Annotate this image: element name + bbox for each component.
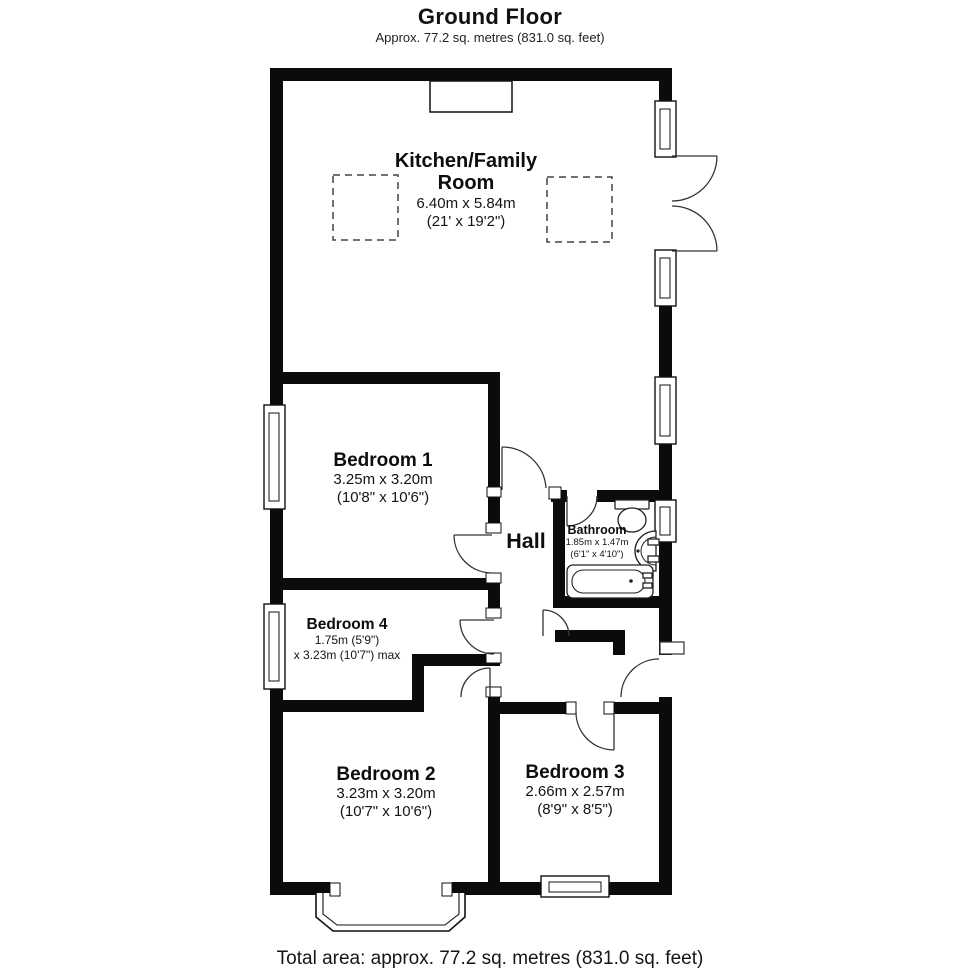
room-dim-imperial: x 3.23m (10'7") max <box>294 648 401 662</box>
window-bathroom <box>655 500 676 542</box>
wall-bedroom3-top-left <box>500 702 576 714</box>
floorplan-drawing <box>0 0 980 980</box>
wall-cap <box>486 523 501 533</box>
side-entrance-door <box>621 642 684 697</box>
room-dim-metric: 1.75m (5'9") <box>294 633 401 647</box>
room-label-bedroom2: Bedroom 2 3.23m x 3.20m (10'7" x 10'6") <box>336 764 435 821</box>
window-kitchen-right-upper <box>655 101 676 157</box>
door-kitchen-hall <box>502 447 546 490</box>
window-bedroom1-left <box>264 405 285 509</box>
wall-cap <box>566 702 576 714</box>
wall-bedroom1-bedroom4 <box>277 578 500 590</box>
window-kitchen-right-lower <box>655 250 676 306</box>
room-name: Hall <box>506 529 545 553</box>
room-label-bathroom: Bathroom 1.85m x 1.47m (6'1" x 4'10") <box>566 523 629 561</box>
room-dim-metric: 1.85m x 1.47m <box>566 537 629 549</box>
room-dim-imperial: (10'8" x 10'6") <box>333 489 432 507</box>
room-dim-metric: 3.25m x 3.20m <box>333 471 432 489</box>
room-label-hall: Hall <box>506 529 545 553</box>
wall-bedroom2-top <box>277 700 424 712</box>
skylight-outline-right <box>547 177 612 242</box>
room-dim-imperial: (8'9" x 8'5") <box>525 801 624 819</box>
wall-kitchen-bedroom1 <box>277 372 500 384</box>
wall-bedroom2-bedroom3 <box>488 697 500 882</box>
door-bedroom3 <box>576 712 614 750</box>
door-bedroom4 <box>460 620 494 654</box>
room-label-bedroom1: Bedroom 1 3.25m x 3.20m (10'8" x 10'6") <box>333 450 432 507</box>
room-dim-imperial: (10'7" x 10'6") <box>336 803 435 821</box>
wall-lobby-stub <box>613 630 625 655</box>
room-dim-imperial: (6'1" x 4'10") <box>566 549 629 561</box>
room-name: Kitchen/Family Room <box>377 150 555 195</box>
wall-cap <box>486 573 501 583</box>
wall-bedroom3-top-right <box>614 702 672 714</box>
window-bedroom4-left <box>264 604 285 689</box>
room-label-bedroom4: Bedroom 4 1.75m (5'9") x 3.23m (10'7") m… <box>294 616 401 662</box>
total-area-text: Total area: approx. 77.2 sq. metres (831… <box>0 948 980 970</box>
room-dim-metric: 6.40m x 5.84m <box>377 195 555 213</box>
outer-wall-right-1 <box>659 68 672 103</box>
room-name: Bedroom 4 <box>294 616 401 633</box>
room-dim-metric: 3.23m x 3.20m <box>336 785 435 803</box>
outer-wall-right-2 <box>659 303 672 380</box>
chimney-breast <box>430 81 512 112</box>
room-name: Bedroom 3 <box>525 762 624 783</box>
wall-cap <box>549 487 561 499</box>
wall-cap <box>604 702 614 714</box>
floorplan-page: Ground Floor Approx. 77.2 sq. metres (83… <box>0 0 980 980</box>
bay-window <box>316 880 465 931</box>
room-dim-imperial: (21' x 19'2") <box>377 213 555 231</box>
door-bedroom1 <box>454 535 492 573</box>
room-name: Bedroom 1 <box>333 450 432 471</box>
room-label-kitchen: Kitchen/Family Room 6.40m x 5.84m (21' x… <box>377 150 555 231</box>
wall-bedroom1-hall-upper <box>488 372 500 533</box>
wall-cap <box>486 687 501 697</box>
bathtub <box>567 565 653 598</box>
window-bedroom3-bottom <box>541 876 609 897</box>
outer-wall-top <box>270 68 672 81</box>
room-dim-metric: 2.66m x 2.57m <box>525 783 624 801</box>
room-label-bedroom3: Bedroom 3 2.66m x 2.57m (8'9" x 8'5") <box>525 762 624 819</box>
outer-wall-right-4 <box>659 540 672 655</box>
wall-cap <box>487 487 501 497</box>
window-right-middle <box>655 377 676 444</box>
door-bathroom <box>567 496 597 526</box>
wall-bathroom-left <box>553 490 565 608</box>
french-doors-kitchen <box>672 156 717 251</box>
room-name: Bathroom <box>566 523 629 537</box>
outer-wall-right-5 <box>659 697 672 895</box>
wall-cap <box>486 608 501 618</box>
room-name: Bedroom 2 <box>336 764 435 785</box>
